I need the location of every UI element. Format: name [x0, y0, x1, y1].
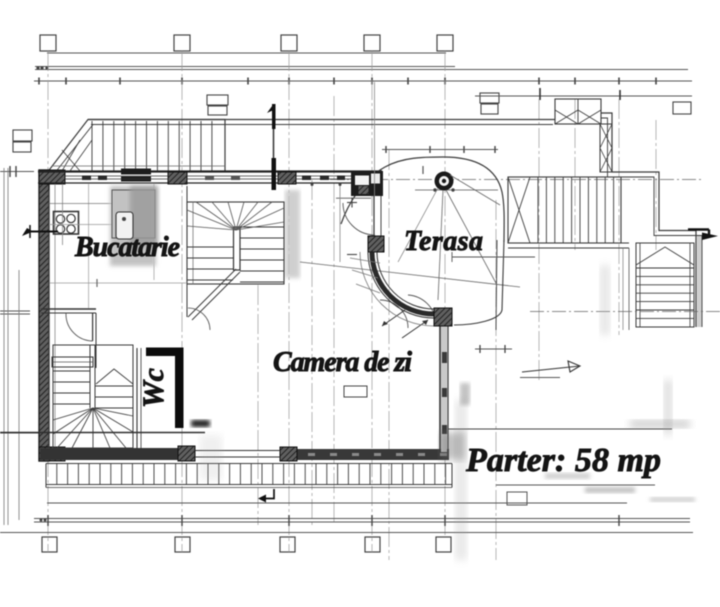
svg-text:Terasa: Terasa — [404, 226, 483, 257]
svg-text:Bucatarie: Bucatarie — [74, 232, 180, 263]
svg-text:Camera de zi: Camera de zi — [273, 347, 412, 378]
svg-text:Wc: Wc — [137, 368, 170, 408]
